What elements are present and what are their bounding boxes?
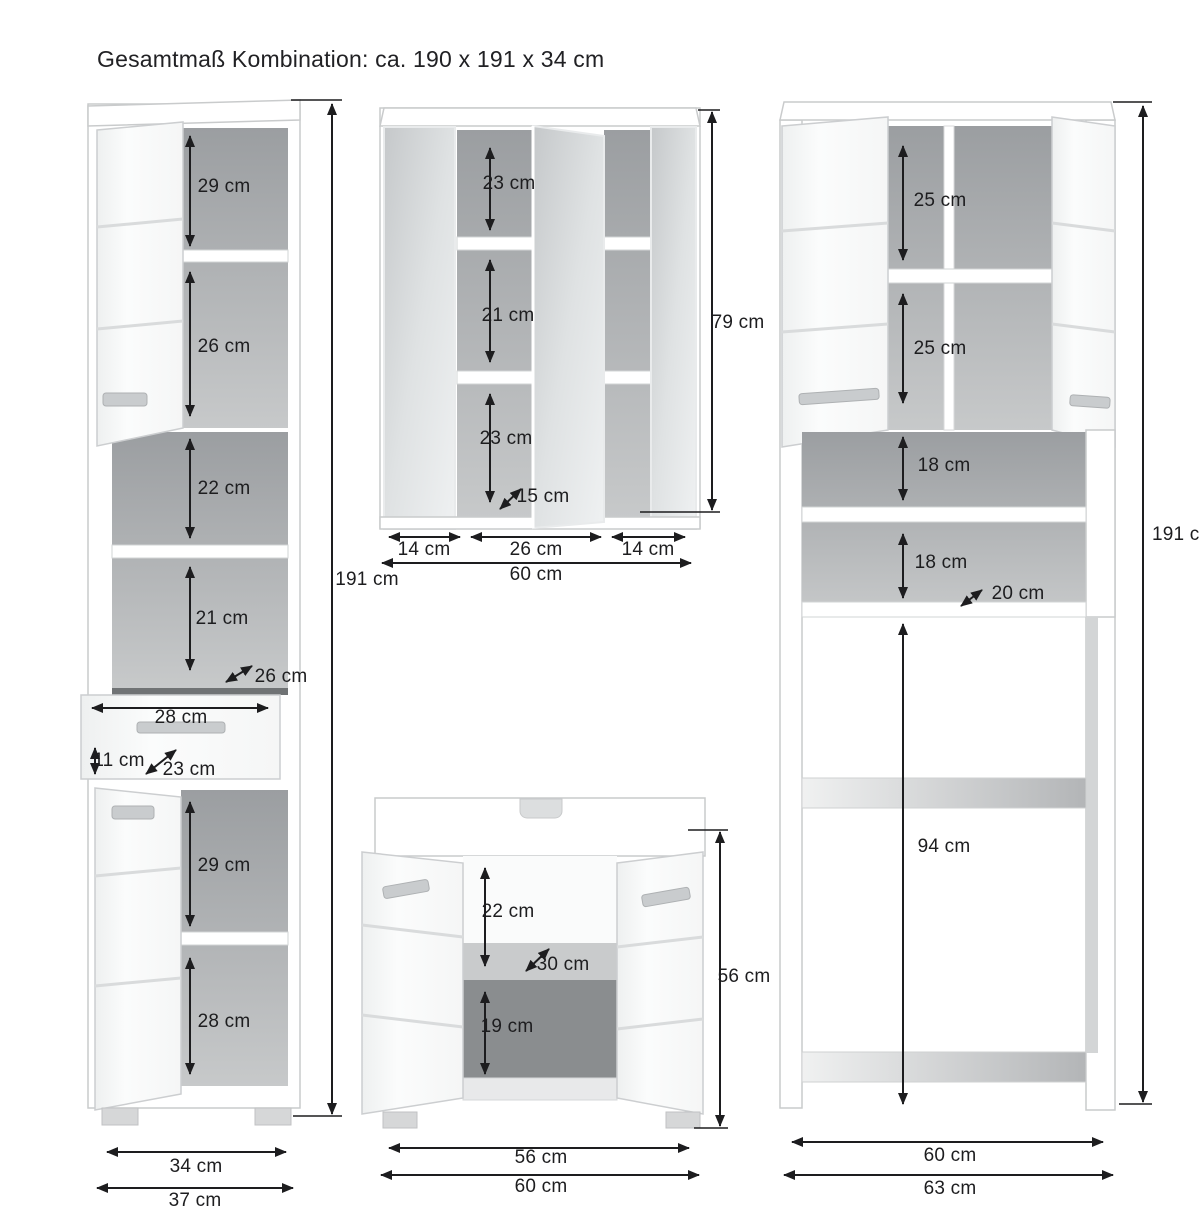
dim-label-washer-opening: 94 cm <box>918 836 971 858</box>
dim-label-washer-total-width: 63 cm <box>924 1178 977 1200</box>
door-handle <box>1070 395 1111 409</box>
dim-label-mirror-left-width: 14 cm <box>398 539 451 561</box>
diagram-canvas: Gesamtmaß Kombination: ca. 190 x 191 x 3… <box>0 0 1200 1209</box>
dim-label-tall-height: 191 cm <box>335 569 399 591</box>
sink-pipe-cutout <box>520 799 562 818</box>
dim-label-tall-second-compartment: 26 cm <box>198 336 251 358</box>
dim-label-tall-shelf-upper: 22 cm <box>198 478 251 500</box>
dim-label-tall-lower-lower: 28 cm <box>198 1011 251 1033</box>
dim-label-sink-height: 56 cm <box>718 966 771 988</box>
washer-cabinet <box>780 102 1152 1175</box>
dim-label-sink-upper: 22 cm <box>482 901 535 923</box>
dim-label-tall-lower-upper: 29 cm <box>198 855 251 877</box>
washer-niche-crossbar-bottom <box>802 1052 1086 1082</box>
page-title: Gesamtmaß Kombination: ca. 190 x 191 x 3… <box>97 46 604 73</box>
dim-label-tall-shelf-lower: 21 cm <box>196 608 249 630</box>
dim-label-mirror-comp1: 23 cm <box>483 173 536 195</box>
dim-label-washer-niche1: 18 cm <box>918 455 971 477</box>
sink-cabinet <box>362 798 728 1175</box>
dim-label-tall-drawer-height: 11 cm <box>93 750 144 772</box>
dim-label-washer-comp1: 25 cm <box>914 190 967 212</box>
door-handle <box>103 393 147 406</box>
tall-cabinet-open-door-bottom <box>95 788 181 1110</box>
dim-label-mirror-comp3: 23 cm <box>480 428 533 450</box>
dim-label-tall-depth: 26 cm <box>255 666 308 688</box>
dim-label-washer-height: 191 cm <box>1152 524 1200 546</box>
mirror-door-left <box>384 127 455 529</box>
dim-label-tall-inner-width: 34 cm <box>170 1156 223 1178</box>
dim-label-sink-inner-width: 56 cm <box>515 1147 568 1169</box>
dim-label-washer-inner-width: 60 cm <box>924 1145 977 1167</box>
dim-label-mirror-comp2: 21 cm <box>482 305 535 327</box>
dim-label-sink-total-width: 60 cm <box>515 1176 568 1198</box>
dim-label-mirror-right-width: 14 cm <box>622 539 675 561</box>
sink-cabinet-open-door-right <box>617 852 703 1114</box>
dim-label-mirror-total-width: 60 cm <box>510 564 563 586</box>
dim-label-tall-top-compartment: 29 cm <box>198 176 251 198</box>
dim-label-tall-drawer-width: 28 cm <box>155 707 208 729</box>
dim-label-tall-outer-width: 37 cm <box>169 1190 222 1209</box>
dim-label-sink-lower: 19 cm <box>481 1016 534 1038</box>
dim-label-mirror-mid-width: 26 cm <box>510 539 563 561</box>
dim-label-sink-depth: 30 cm <box>537 954 590 976</box>
dim-label-washer-niche2: 18 cm <box>915 552 968 574</box>
dim-label-washer-comp2: 25 cm <box>914 338 967 360</box>
door-handle <box>112 806 154 819</box>
mirror-door-open <box>533 126 604 528</box>
dim-label-washer-depth: 20 cm <box>992 583 1045 605</box>
dim-label-mirror-depth: 15 cm <box>517 486 570 508</box>
dim-label-mirror-height: 79 cm <box>712 312 765 334</box>
mirror-door-right <box>651 127 696 529</box>
washer-niche-crossbar-top <box>802 778 1086 808</box>
dim-label-tall-drawer-depth: 23 cm <box>163 759 216 781</box>
